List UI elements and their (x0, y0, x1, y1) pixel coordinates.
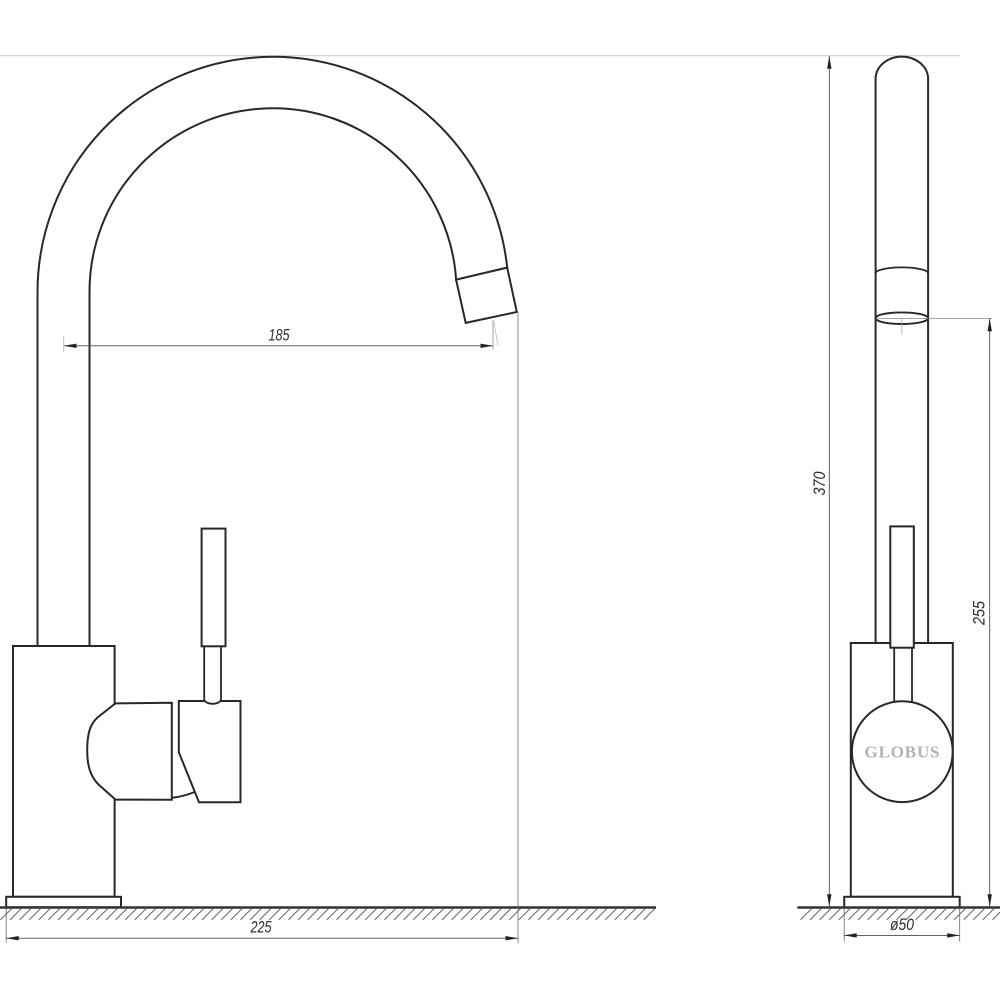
svg-text:GLOBUS: GLOBUS (864, 743, 940, 762)
svg-text:ø50: ø50 (890, 915, 914, 934)
svg-text:370: 370 (810, 471, 829, 495)
svg-text:225: 225 (250, 918, 272, 937)
svg-text:255: 255 (970, 601, 989, 626)
svg-text:185: 185 (269, 326, 290, 345)
